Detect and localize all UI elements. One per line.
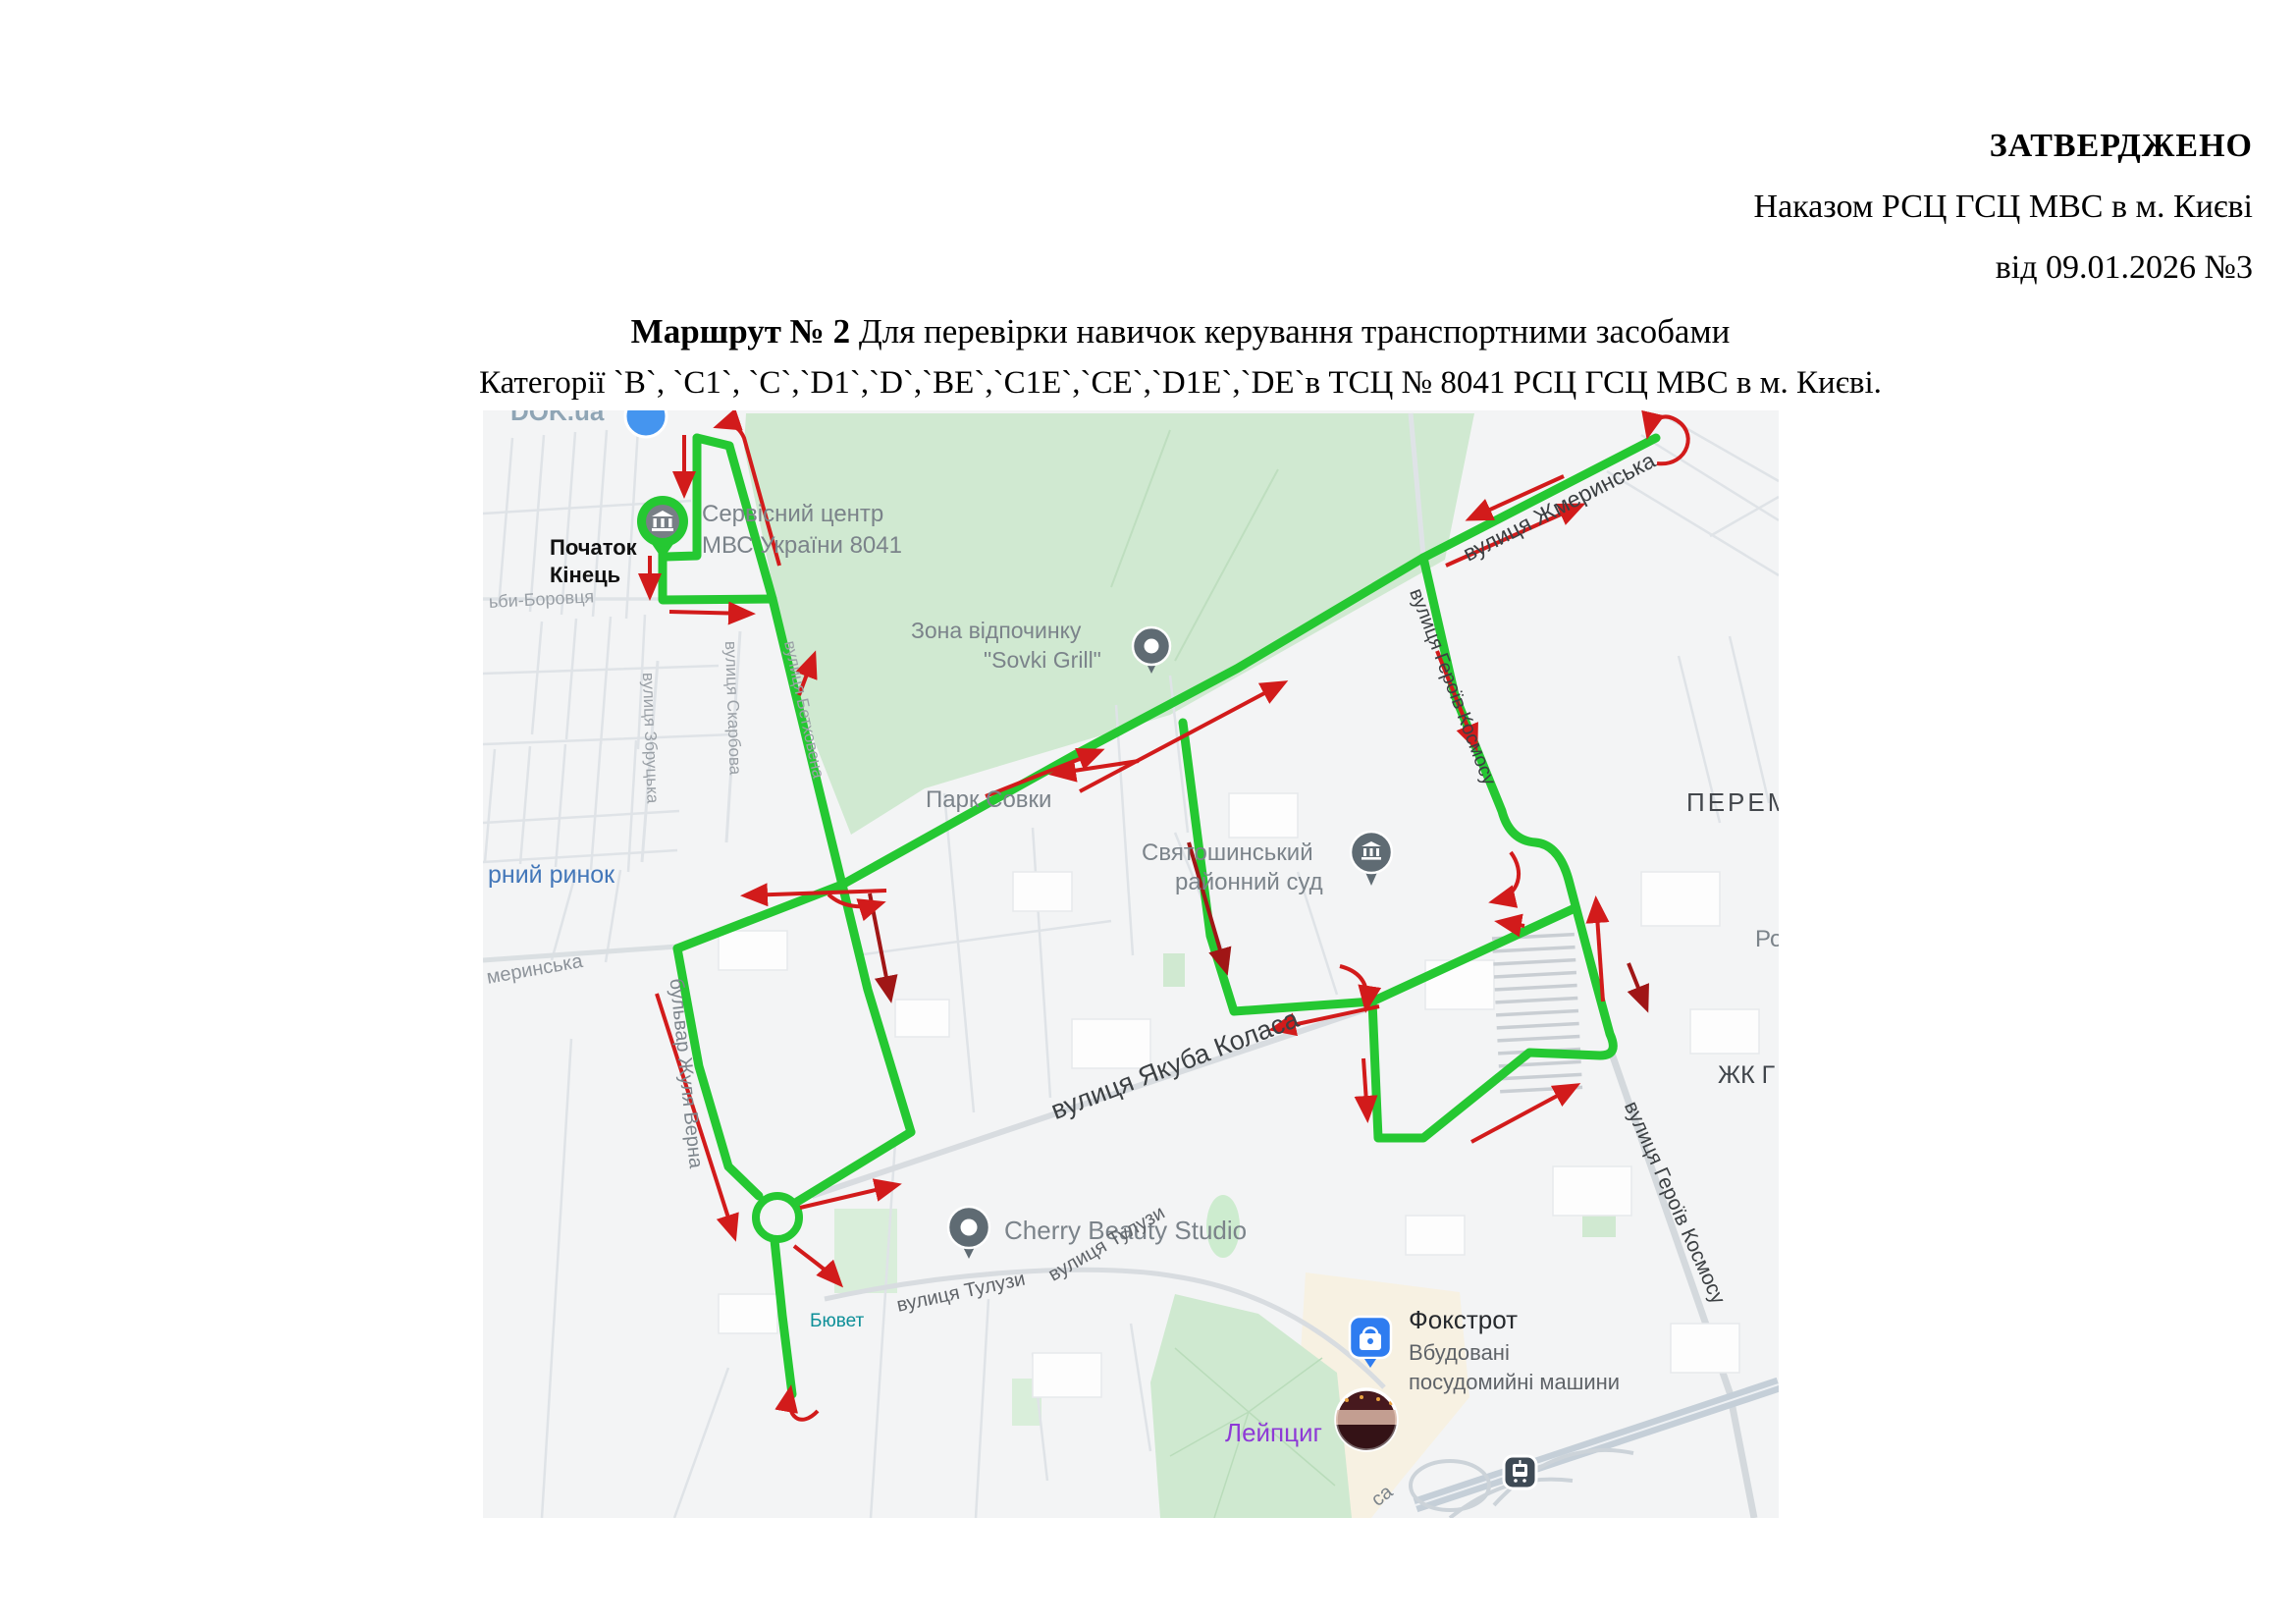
label-zona-line2: "Sovki Grill": [984, 648, 1101, 672]
label-perem-district: ПЕРЕМ: [1686, 789, 1779, 816]
label-zona-line1: Зона відпочинку: [911, 619, 1081, 642]
label-zbrutska-street: вулиця Збруцька: [639, 673, 661, 804]
label-service-center-1: Сервісний центр: [702, 502, 883, 526]
label-court-line1: Святошинський: [1142, 840, 1313, 865]
approval-line-3: від 09.01.2026 №3: [1754, 238, 2253, 298]
roundabout: [756, 1196, 799, 1239]
dok-pin-icon: [625, 410, 667, 437]
start-end-marker-icon: [637, 496, 688, 560]
label-dok: DOK.ua: [510, 410, 604, 425]
approval-line-1: ЗАТВЕРДЖЕНО: [1754, 116, 2253, 177]
cherry-pin-icon: [948, 1207, 989, 1259]
document-page: ЗАТВЕРДЖЕНО Наказом РСЦ ГСЦ МВС в м. Киє…: [0, 0, 2296, 1624]
highway: [1411, 1384, 1779, 1518]
court-pin-icon: [1351, 832, 1392, 886]
label-skarbova-street: вулиця Скарбова: [721, 641, 744, 776]
tram-station-icon: [1504, 1456, 1536, 1489]
place-photo-thumbnail: [1336, 1389, 1397, 1450]
label-zhk-partial: ЖК Г: [1718, 1062, 1775, 1088]
label-biuvet: Бювет: [810, 1312, 864, 1331]
label-court-line2: районний суд: [1175, 870, 1323, 894]
map-canvas: [483, 410, 1779, 1518]
route-subtitle: Категорії `B`, `C1`, `C`,`D1`,`D`,`BE`,`…: [32, 365, 2296, 402]
title-block: Маршрут № 2 Для перевірки навичок керува…: [32, 312, 2296, 402]
label-start-line2: Кінець: [550, 564, 620, 586]
label-fokstrot-sub1: Вбудовані: [1409, 1341, 1510, 1364]
label-start-line1: Початок: [550, 536, 637, 559]
label-fokstrot: Фокстрот: [1409, 1307, 1518, 1333]
label-rynok: рний ринок: [488, 862, 614, 888]
route-map: DOK.ua Початок Кінець Сервісний центр МВ…: [483, 410, 1779, 1518]
approval-block: ЗАТВЕРДЖЕНО Наказом РСЦ ГСЦ МВС в м. Киє…: [1754, 116, 2253, 298]
route-title-number: Маршрут № 2: [631, 312, 850, 351]
label-leipzig: Лейпциг: [1225, 1420, 1322, 1446]
route-title-text: Для перевірки навичок керування транспор…: [850, 312, 1730, 351]
approval-line-2: Наказом РСЦ ГСЦ МВС в м. Києві: [1754, 177, 2253, 238]
route-title: Маршрут № 2 Для перевірки навичок керува…: [32, 312, 2296, 352]
label-park-sovky: Парк Совки: [926, 787, 1051, 812]
label-ro-partial: Ро: [1755, 927, 1779, 951]
label-service-center-2: МВС України 8041: [702, 533, 902, 558]
label-fokstrot-sub2: посудомийні машини: [1409, 1371, 1620, 1393]
